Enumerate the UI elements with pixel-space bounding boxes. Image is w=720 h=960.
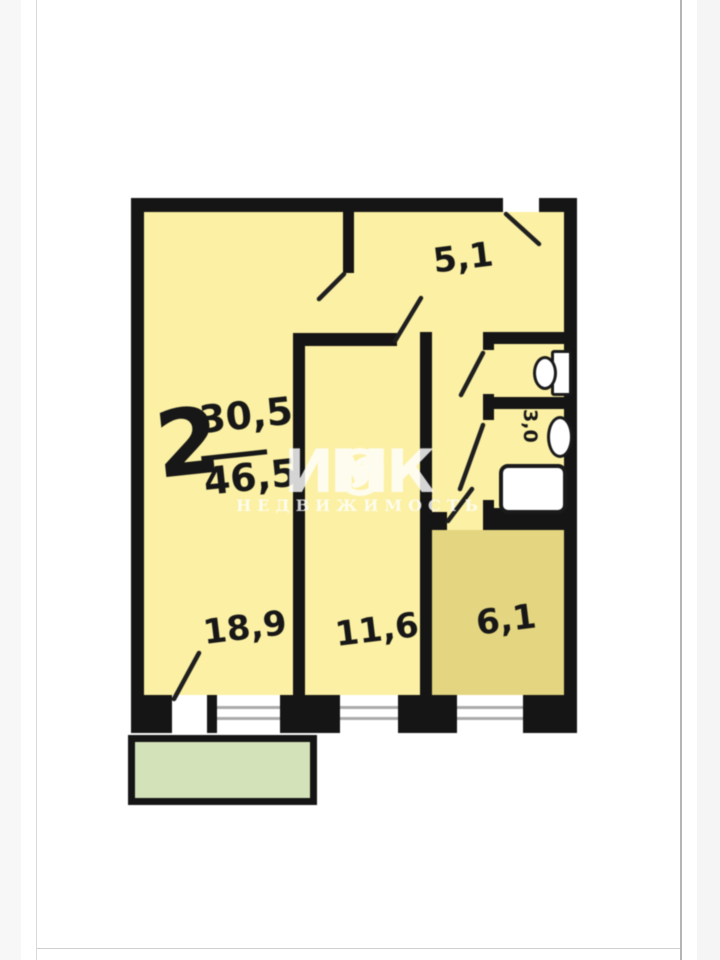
content-border-right: [680, 0, 682, 960]
brand-subtitle: НЕДВИЖИМОСТЬ: [179, 496, 541, 515]
door-swing-entrance: [506, 214, 539, 244]
hallway-area-label: 5,1: [431, 234, 496, 281]
content-border-bottom: [37, 948, 680, 949]
page-right-margin: [697, 0, 720, 960]
bathroom-area-label: 3,0: [519, 409, 541, 441]
content-border-left: [36, 0, 37, 960]
sink-icon: [547, 416, 573, 458]
door-swing-living-room: [319, 274, 344, 299]
door-swing-bedroom: [395, 298, 421, 341]
balcony: [128, 735, 317, 805]
door-swing-wc: [461, 353, 483, 395]
brand-name: ИНКМ: [219, 444, 501, 500]
door-swing-balcony: [174, 653, 199, 699]
living-area-value: 30,5: [197, 389, 295, 443]
toilet-bowl-icon: [533, 356, 557, 390]
kitchen-area-label: 6,1: [474, 596, 539, 643]
floor-plan: 5,1 18,9 11,6 6,1 3,0 2 30,5 46,5 ИНКМ Н…: [131, 198, 577, 733]
page-left-margin: [0, 0, 21, 960]
